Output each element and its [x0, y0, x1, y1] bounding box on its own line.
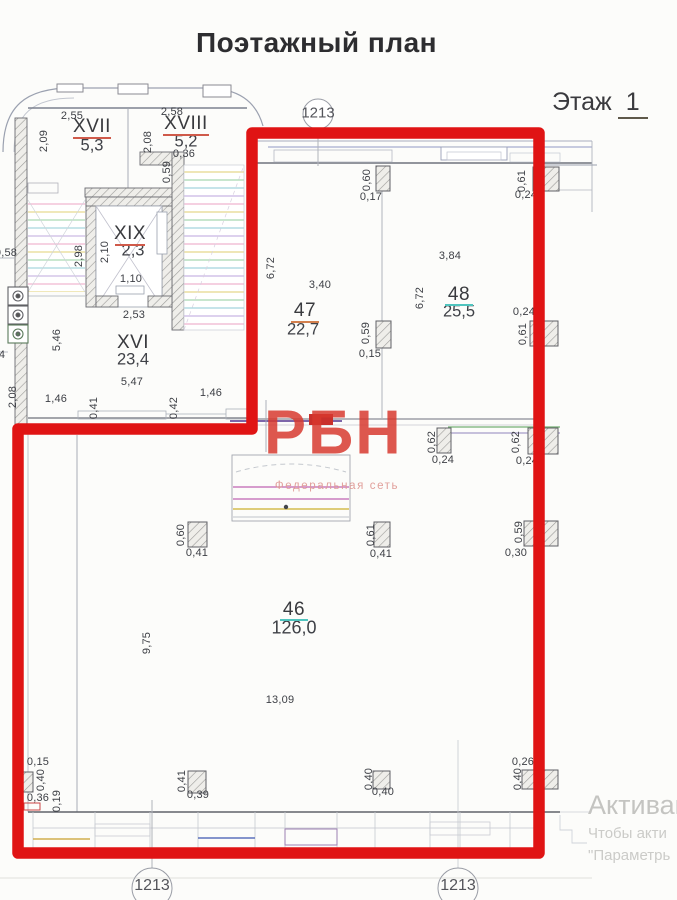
activation-line-2: Чтобы акти	[588, 823, 677, 845]
floor-label: Этаж	[552, 88, 612, 116]
activation-line-3: "Параметрь	[588, 845, 677, 867]
floor-number: 1	[618, 88, 648, 119]
watermark-logo: РБН	[264, 403, 403, 465]
activation-line-1: Активац	[588, 789, 677, 823]
floor-indicator: Этаж1	[552, 88, 648, 117]
windows-activation-watermark: Активац Чтобы акти "Параметрь	[588, 789, 677, 866]
page-title: Поэтажный план	[196, 27, 437, 59]
annotations-layer: Поэтажный план Этаж1 РБН Федеральная сет…	[0, 0, 677, 900]
watermark-tagline: Федеральная сеть	[275, 480, 399, 492]
